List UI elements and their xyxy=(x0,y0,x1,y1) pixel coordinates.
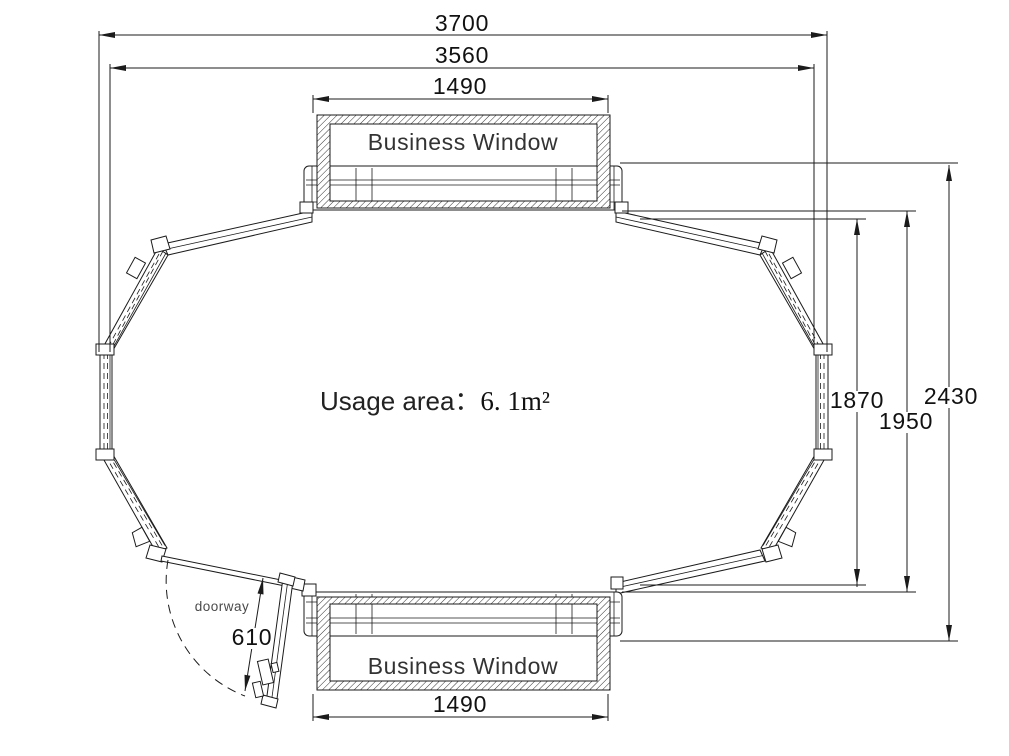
dim-glass-width-label: 3560 xyxy=(435,42,489,68)
dim-inner-depth-label: 1870 xyxy=(830,387,884,413)
usage-area-value: 6. 1m² xyxy=(480,386,550,416)
corner-joint xyxy=(814,344,832,355)
doorway-label: doorway xyxy=(195,599,250,614)
corner-joint xyxy=(814,449,832,460)
floor-plan-drawing: Business Window Business Window xyxy=(0,0,1009,756)
door-hardware xyxy=(271,662,279,672)
corner-joint xyxy=(96,449,114,460)
usage-area-text: Usage area：6. 1m² xyxy=(320,386,550,416)
dim-overall-depth-label: 2430 xyxy=(924,383,978,409)
background xyxy=(0,0,1009,756)
usage-area-label: Usage area： xyxy=(320,386,480,416)
bottom-window-label: Business Window xyxy=(368,653,559,679)
dim-bottom-window-width-label: 1490 xyxy=(433,691,487,717)
dim-frame-depth-label: 1950 xyxy=(879,408,933,434)
dim-overall-width-label: 3700 xyxy=(435,10,489,36)
dim-door-width-label: 610 xyxy=(232,624,273,650)
dim-top-window-width-label: 1490 xyxy=(433,73,487,99)
floor-plan-canvas: Business Window Business Window xyxy=(0,0,1009,756)
top-window-label: Business Window xyxy=(368,129,559,155)
